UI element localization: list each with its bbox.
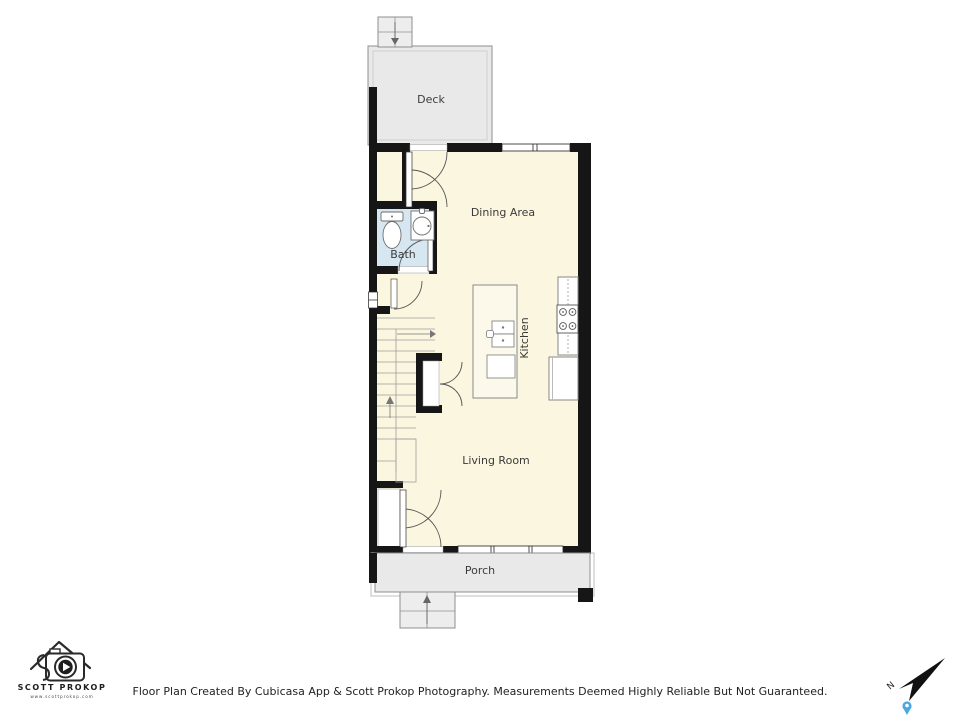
living-room-label: Living Room bbox=[462, 454, 530, 467]
deck-label: Deck bbox=[417, 93, 445, 106]
floor-plan-page: Deck Dining Area Bath Kitchen Living Roo… bbox=[0, 0, 960, 720]
window-bottom bbox=[458, 546, 563, 553]
floor-plan-canvas: Deck Dining Area Bath Kitchen Living Roo… bbox=[0, 0, 960, 720]
dishwasher-icon bbox=[487, 355, 515, 378]
logo-name-text: SCOTT PROKOP bbox=[18, 683, 107, 692]
porch-steps bbox=[400, 592, 455, 628]
entry-vestibule bbox=[378, 489, 400, 548]
fridge-icon bbox=[549, 357, 578, 400]
window-top bbox=[502, 144, 570, 151]
stove-icon bbox=[557, 305, 578, 333]
bathroom-sink-icon bbox=[411, 209, 434, 241]
logo-website-text: www.scottprokop.com bbox=[30, 694, 93, 699]
window-left-small bbox=[369, 292, 378, 308]
location-pin-icon bbox=[902, 701, 911, 715]
compass-north-letter: N bbox=[886, 680, 898, 692]
kitchen-label: Kitchen bbox=[518, 317, 531, 358]
deck-area bbox=[368, 17, 492, 145]
compass-north-arrow-icon bbox=[899, 658, 945, 701]
footer-disclaimer: Floor Plan Created By Cubicasa App & Sco… bbox=[133, 685, 828, 698]
porch-label: Porch bbox=[465, 564, 495, 577]
dining-area-label: Dining Area bbox=[471, 206, 535, 219]
compass: N bbox=[886, 658, 945, 715]
camera-house-logo-icon bbox=[31, 642, 90, 681]
bath-label: Bath bbox=[390, 248, 416, 261]
scott-prokop-logo: SCOTT PROKOP www.scottprokop.com bbox=[18, 642, 107, 699]
deck-steps bbox=[378, 17, 412, 47]
toilet-icon bbox=[381, 212, 403, 249]
